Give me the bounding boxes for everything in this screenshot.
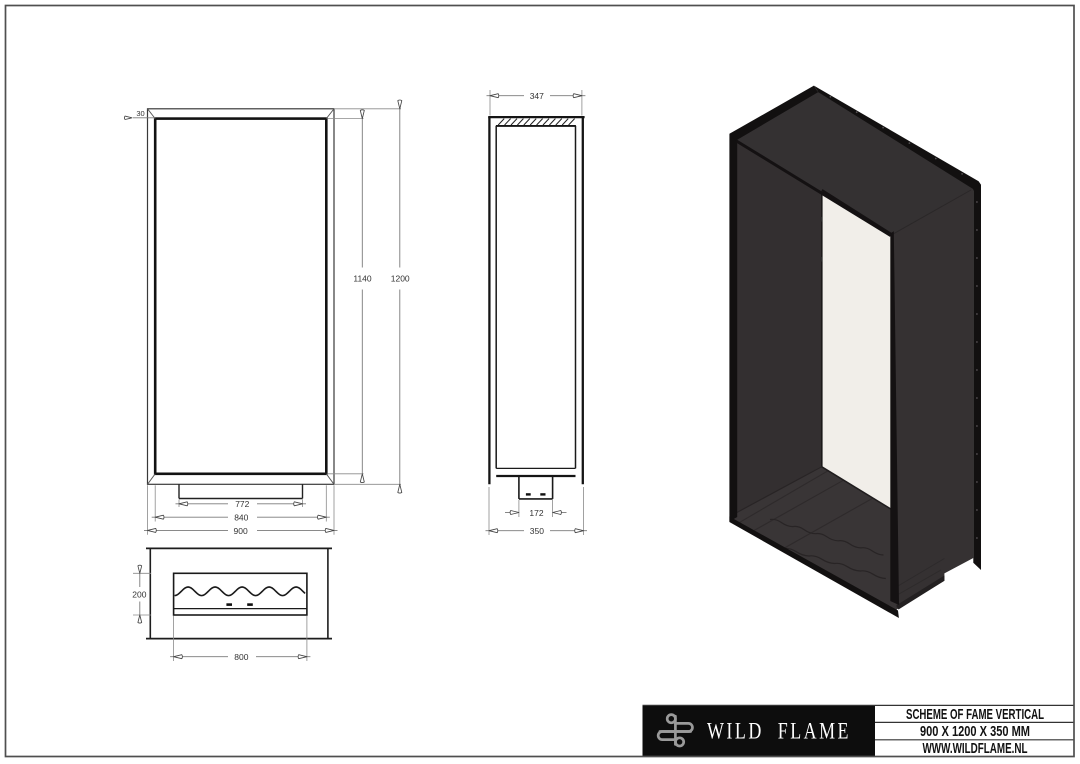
svg-text:WILD FLAME: WILD FLAME (707, 719, 851, 744)
svg-text:900: 900 (234, 526, 248, 536)
svg-text:1200: 1200 (391, 274, 410, 284)
svg-text:200: 200 (132, 589, 146, 599)
svg-text:347: 347 (530, 91, 544, 101)
svg-text:30: 30 (136, 109, 144, 118)
svg-text:SCHEME OF FAME VERTICAL: SCHEME OF FAME VERTICAL (906, 706, 1044, 723)
svg-text:800: 800 (234, 652, 248, 662)
svg-text:840: 840 (234, 513, 248, 523)
svg-text:1140: 1140 (353, 274, 372, 284)
svg-text:WWW.WILDFLAME.NL: WWW.WILDFLAME.NL (923, 740, 1028, 757)
svg-text:772: 772 (235, 499, 249, 509)
svg-text:172: 172 (529, 508, 543, 518)
svg-text:350: 350 (530, 526, 544, 536)
svg-text:900 X 1200 X 350 MM: 900 X 1200 X 350 MM (920, 723, 1030, 740)
